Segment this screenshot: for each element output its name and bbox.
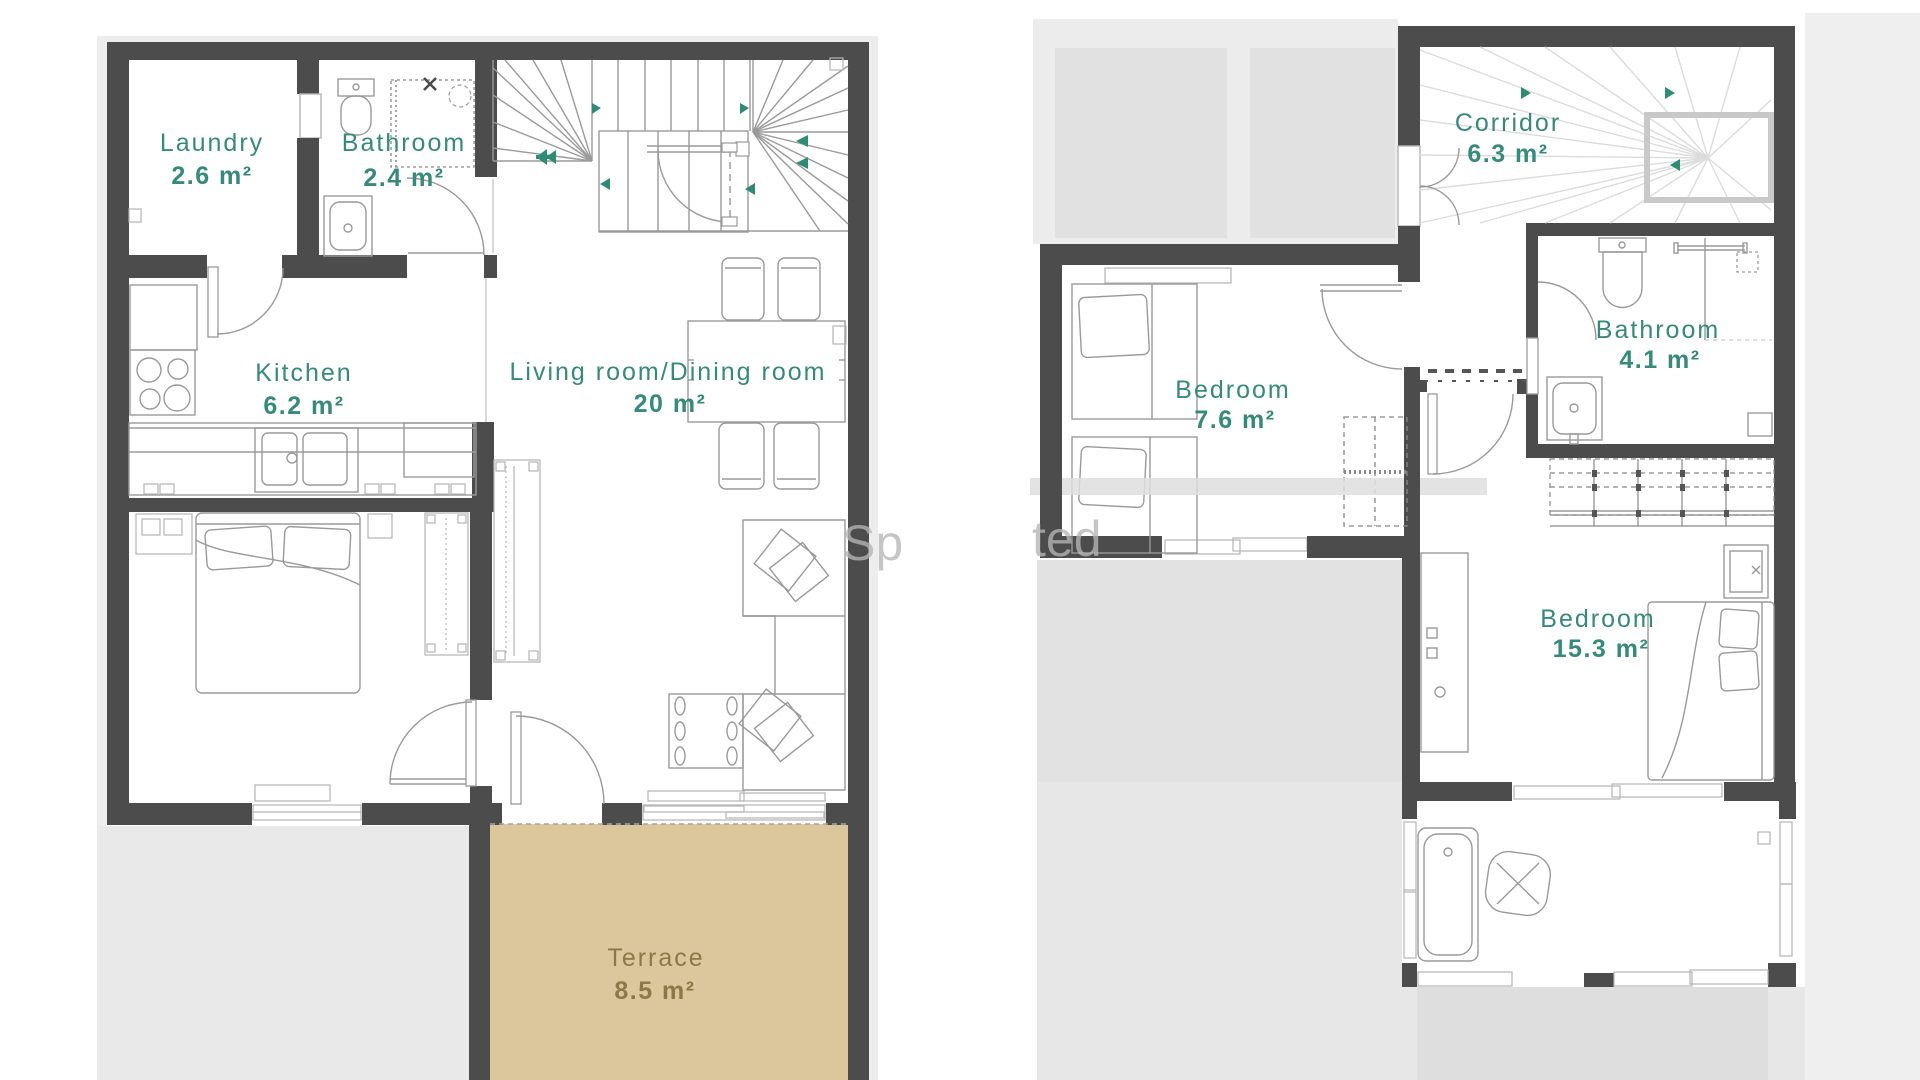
svg-text:6.2 m²: 6.2 m²	[263, 392, 344, 420]
svg-text:Bedroom: Bedroom	[1175, 376, 1290, 404]
svg-text:Laundry: Laundry	[160, 129, 264, 157]
svg-text:2.4 m²: 2.4 m²	[363, 164, 444, 192]
svg-text:Sp: Sp	[842, 515, 903, 571]
svg-text:20 m²: 20 m²	[634, 390, 707, 418]
svg-text:ted: ted	[1032, 511, 1102, 567]
svg-text:6.3 m²: 6.3 m²	[1467, 140, 1548, 168]
svg-text:2.6 m²: 2.6 m²	[171, 162, 252, 190]
svg-text:4.1 m²: 4.1 m²	[1619, 346, 1700, 374]
svg-text:Bathroom: Bathroom	[1596, 316, 1720, 344]
svg-text:15.3 m²: 15.3 m²	[1553, 635, 1650, 663]
svg-text:Living room/Dining room: Living room/Dining room	[510, 358, 827, 386]
svg-text:Bedroom: Bedroom	[1540, 605, 1655, 633]
svg-text:Kitchen: Kitchen	[255, 359, 352, 387]
svg-text:Bathroom: Bathroom	[342, 129, 466, 157]
svg-text:8.5 m²: 8.5 m²	[614, 977, 695, 1005]
svg-text:Terrace: Terrace	[607, 944, 704, 972]
svg-text:Corridor: Corridor	[1455, 109, 1561, 137]
svg-text:7.6 m²: 7.6 m²	[1194, 406, 1275, 434]
